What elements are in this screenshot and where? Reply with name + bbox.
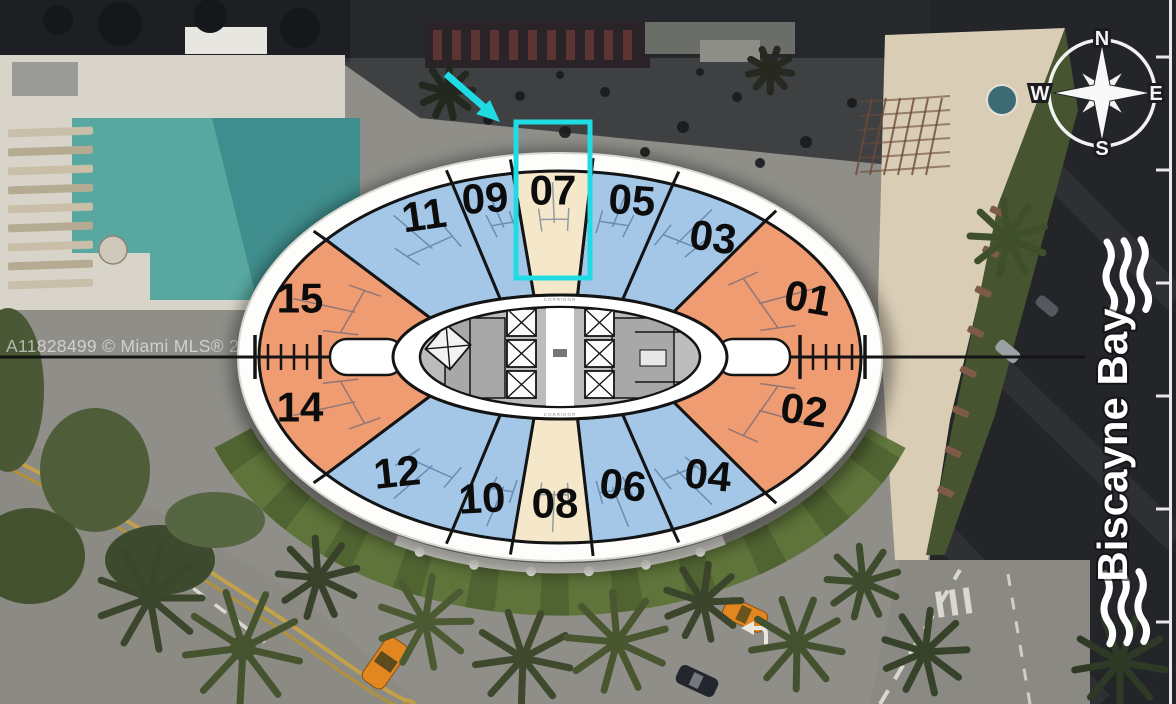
unit-label-14: 14 bbox=[277, 384, 324, 431]
white-cabana bbox=[185, 27, 267, 54]
unit-label-09: 09 bbox=[460, 173, 510, 223]
compass-letter-w: W bbox=[1031, 83, 1050, 105]
unit-label-11: 11 bbox=[399, 189, 450, 242]
bay-label: Biscayne Bay bbox=[1089, 308, 1136, 582]
unit-label-07: 07 bbox=[530, 167, 577, 214]
watermark: A11828499 © Miami MLS® 2025 bbox=[6, 336, 269, 356]
spa-pool bbox=[987, 85, 1017, 115]
unit-label-15: 15 bbox=[277, 275, 324, 322]
unit-label-04: 04 bbox=[682, 449, 734, 501]
unit-label-10: 10 bbox=[457, 473, 506, 522]
unit-label-02: 02 bbox=[778, 383, 831, 436]
aerial-scene: A11828499 © Miami MLS® 2025 bbox=[0, 0, 1176, 704]
compass-letter-e: E bbox=[1149, 83, 1162, 105]
road-right bbox=[870, 560, 1090, 704]
corridor-label-top: CORRIDOR bbox=[544, 297, 577, 302]
compass-letter-n: N bbox=[1095, 28, 1109, 50]
unit-label-12: 12 bbox=[371, 446, 422, 498]
crosswalk bbox=[935, 587, 972, 617]
unit-label-05: 05 bbox=[607, 175, 657, 225]
pool-umbrella bbox=[99, 236, 127, 264]
cabana bbox=[12, 62, 78, 96]
unit-label-06: 06 bbox=[597, 459, 648, 511]
unit-label-03: 03 bbox=[687, 210, 740, 263]
unit-label-08: 08 bbox=[532, 480, 579, 527]
unit-label-01: 01 bbox=[781, 271, 835, 325]
listing-photo: A11828499 © Miami MLS® 2025 bbox=[0, 0, 1176, 704]
corridor-label-bottom: CORRIDOR bbox=[544, 412, 577, 417]
lounge-chairs bbox=[8, 127, 93, 290]
compass-letter-s: S bbox=[1095, 138, 1108, 160]
